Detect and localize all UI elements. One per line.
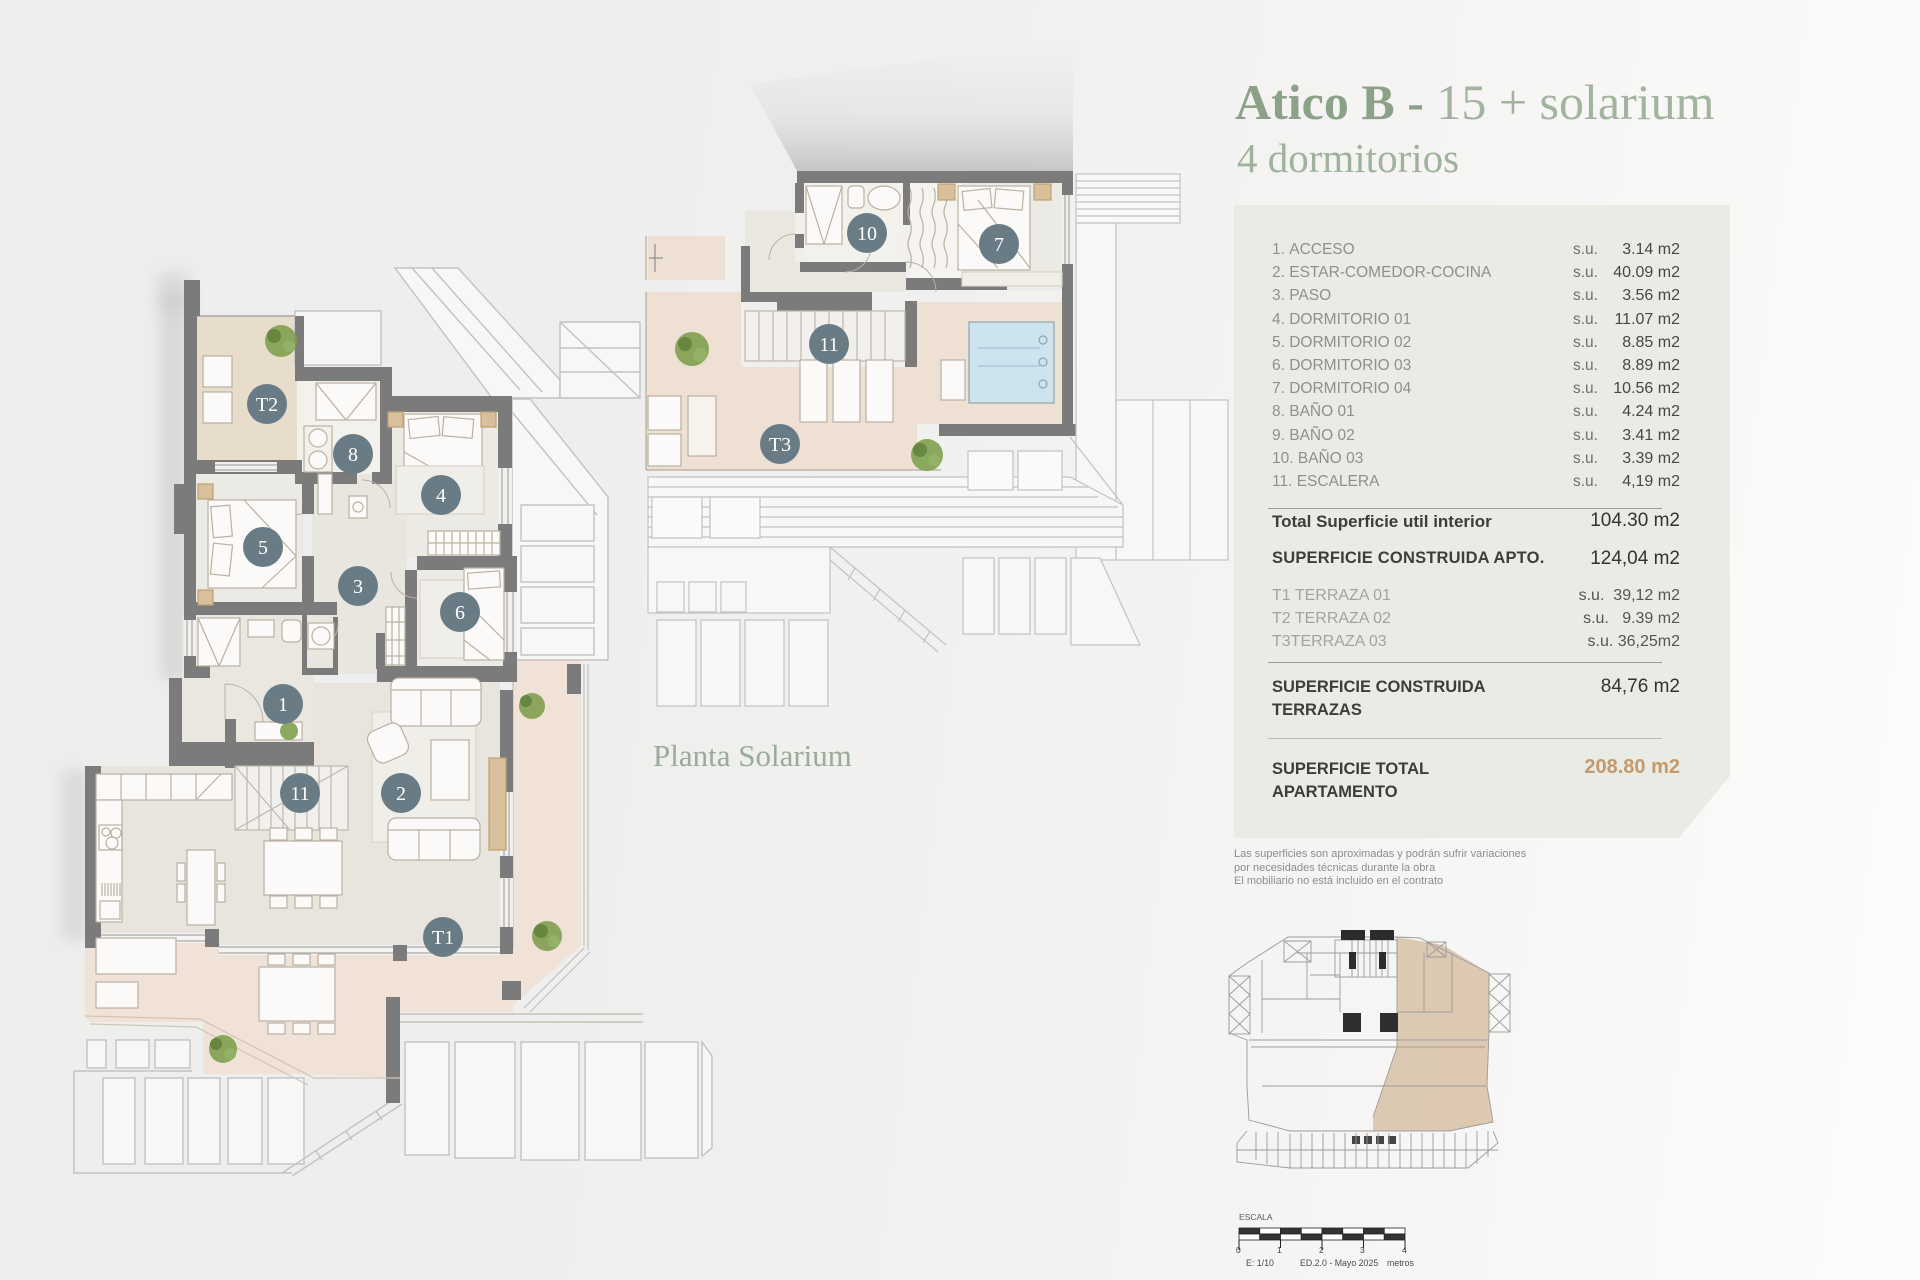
svg-text:7: 7: [994, 234, 1004, 256]
svg-text:10: 10: [857, 223, 877, 245]
svg-text:2: 2: [1319, 1245, 1324, 1255]
svg-text:metros: metros: [1387, 1258, 1414, 1268]
svg-text:3: 3: [1360, 1245, 1365, 1255]
svg-text:11: 11: [819, 334, 838, 356]
svg-text:4: 4: [1402, 1245, 1407, 1255]
svg-text:T2: T2: [256, 394, 278, 416]
svg-text:1: 1: [278, 694, 288, 716]
svg-text:2: 2: [396, 783, 406, 805]
svg-text:E: 1/10: E: 1/10: [1246, 1258, 1274, 1268]
svg-text:3: 3: [353, 576, 363, 598]
svg-text:4: 4: [436, 485, 446, 507]
svg-text:ED.2.0 - Mayo 2025: ED.2.0 - Mayo 2025: [1300, 1258, 1378, 1268]
svg-text:6: 6: [455, 602, 465, 624]
svg-text:ESCALA: ESCALA: [1239, 1212, 1273, 1222]
svg-text:11: 11: [290, 783, 309, 805]
svg-text:1: 1: [1277, 1245, 1282, 1255]
svg-text:T3: T3: [769, 434, 791, 456]
svg-text:0: 0: [1236, 1245, 1241, 1255]
svg-text:5: 5: [258, 537, 268, 559]
svg-text:T1: T1: [432, 927, 454, 949]
svg-text:8: 8: [348, 444, 358, 466]
